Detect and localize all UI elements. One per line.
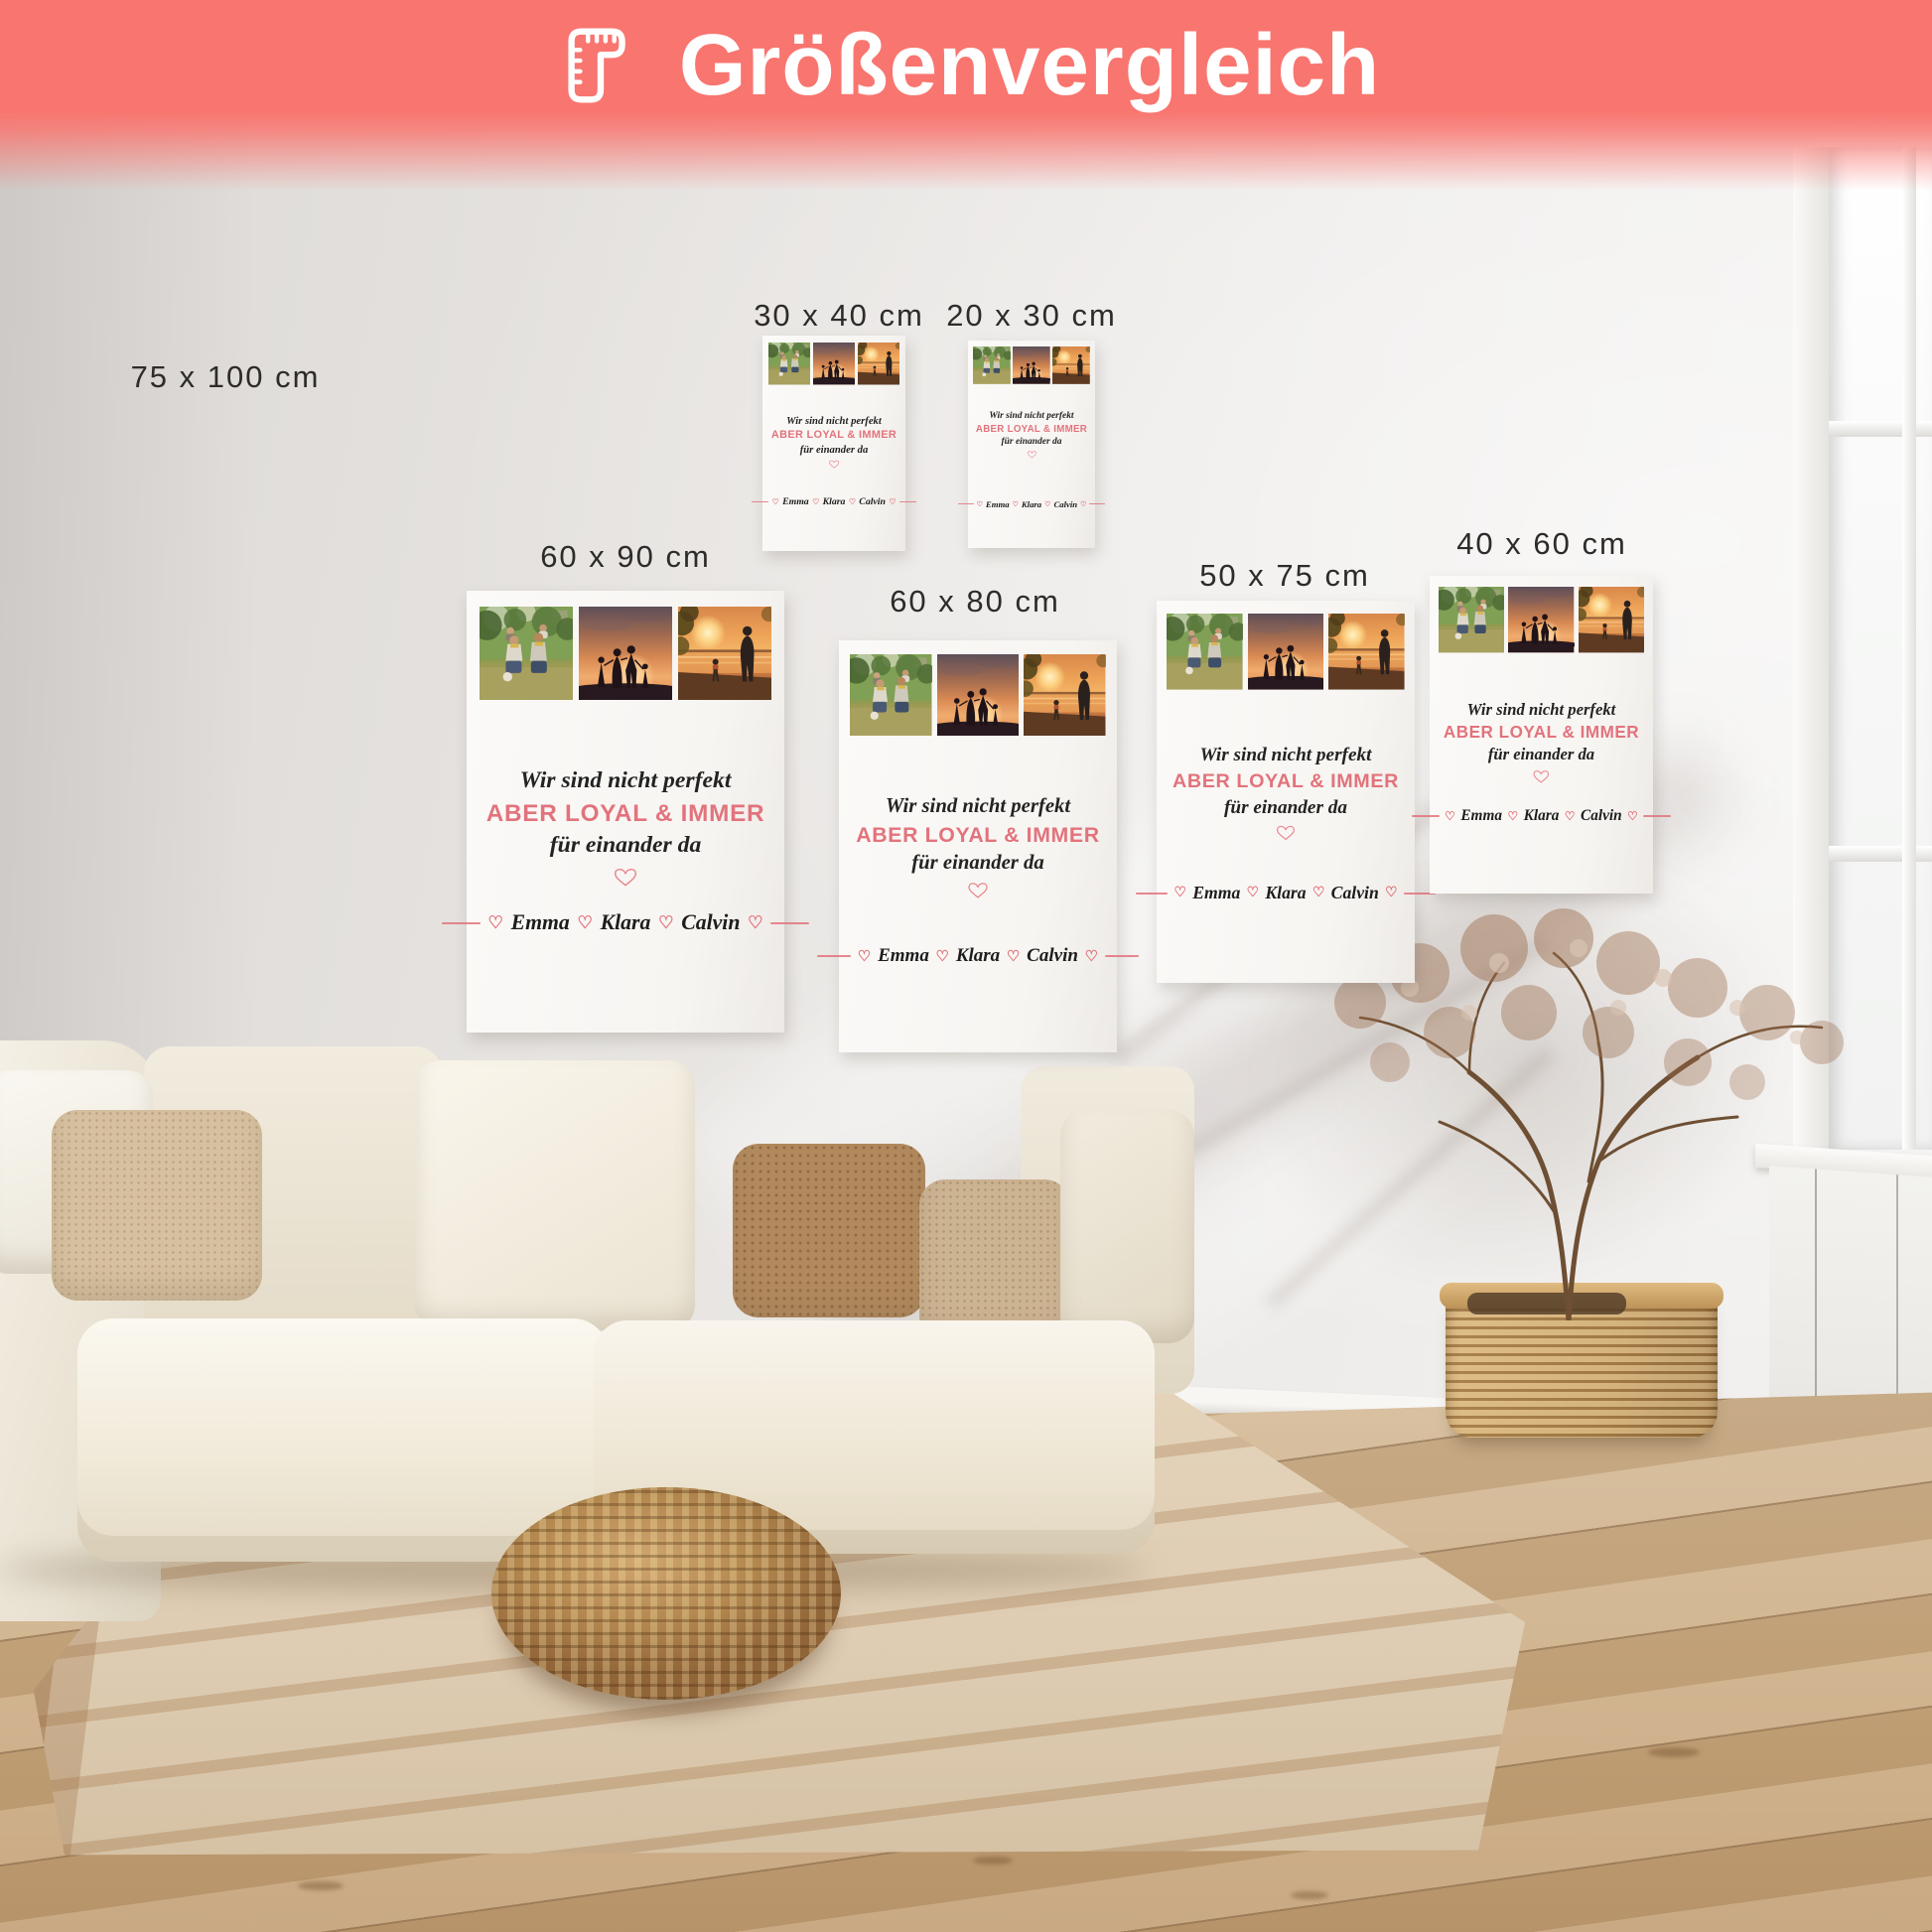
name-calvin: Calvin bbox=[681, 910, 740, 935]
photo-strip bbox=[1167, 614, 1404, 690]
name-calvin: Calvin bbox=[859, 496, 886, 507]
names-row: ♡ Emma ♡ Klara ♡ Calvin ♡ bbox=[1136, 883, 1435, 903]
size-comparison-scene: 75 x 100 cm 30 x 40 cm 20 x 30 cm 60 x 9… bbox=[0, 0, 1932, 1932]
photo-strip bbox=[973, 346, 1090, 384]
quote-block: Wir sind nicht perfekt ABER LOYAL & IMME… bbox=[486, 766, 765, 891]
divider-line bbox=[899, 501, 917, 502]
name-klara: Klara bbox=[601, 910, 651, 935]
quote-line2: ABER LOYAL & IMMER bbox=[976, 424, 1087, 436]
pillow-tan bbox=[919, 1179, 1070, 1342]
canvas-50x75: Wir sind nicht perfekt ABER LOYAL & IMME… bbox=[1157, 601, 1415, 983]
quote-line3: für einander da bbox=[550, 831, 702, 861]
father-child-sunset-photo bbox=[1328, 614, 1405, 690]
heart-divider-icon: ♡ bbox=[772, 497, 779, 506]
heart-divider-icon: ♡ bbox=[812, 497, 819, 506]
heart-divider-icon: ♡ bbox=[1007, 947, 1021, 966]
canvas-20x30: Wir sind nicht perfekt ABER LOYAL & IMME… bbox=[968, 341, 1095, 548]
sofa-seat-cushion bbox=[77, 1318, 609, 1562]
quote-line1: Wir sind nicht perfekt bbox=[786, 415, 882, 428]
names-row: ♡ Emma ♡ Klara ♡ Calvin ♡ bbox=[958, 499, 1105, 509]
heart-outline-icon bbox=[827, 458, 841, 471]
father-child-sunset-photo bbox=[1052, 346, 1090, 384]
name-klara: Klara bbox=[823, 496, 846, 507]
page-title: Größenvergleich bbox=[679, 22, 1380, 108]
heart-divider-icon: ♡ bbox=[849, 497, 856, 506]
quote-line1: Wir sind nicht perfekt bbox=[886, 794, 1070, 820]
divider-line bbox=[817, 955, 851, 957]
heart-divider-icon: ♡ bbox=[1445, 809, 1455, 824]
quote-line2: ABER LOYAL & IMMER bbox=[771, 429, 897, 442]
name-emma: Emma bbox=[1460, 807, 1502, 825]
heart-divider-icon: ♡ bbox=[1507, 809, 1518, 824]
pillow-cream bbox=[415, 1060, 695, 1330]
family-park-photo bbox=[480, 607, 573, 700]
wood-knot bbox=[973, 1857, 1013, 1864]
heart-divider-icon: ♡ bbox=[748, 912, 763, 933]
window-mullion bbox=[1902, 147, 1916, 1150]
name-klara: Klara bbox=[1022, 499, 1041, 509]
divider-line bbox=[770, 922, 809, 924]
heart-outline-icon bbox=[1273, 821, 1299, 844]
quote-block: Wir sind nicht perfekt ABER LOYAL & IMME… bbox=[856, 794, 1099, 902]
names-row: ♡ Emma ♡ Klara ♡ Calvin ♡ bbox=[1412, 807, 1671, 825]
divider-line bbox=[1089, 503, 1105, 504]
heart-divider-icon: ♡ bbox=[1173, 885, 1186, 901]
heart-divider-icon: ♡ bbox=[936, 947, 950, 966]
name-klara: Klara bbox=[1265, 883, 1306, 903]
heart-divider-icon: ♡ bbox=[858, 947, 872, 966]
heart-outline-icon bbox=[610, 863, 641, 892]
canvas-60x80: Wir sind nicht perfekt ABER LOYAL & IMME… bbox=[839, 640, 1117, 1052]
quote-line2: ABER LOYAL & IMMER bbox=[486, 799, 765, 828]
name-calvin: Calvin bbox=[1027, 945, 1078, 967]
family-park-photo bbox=[1439, 587, 1504, 652]
heart-divider-icon: ♡ bbox=[1080, 500, 1086, 508]
pillow-cream bbox=[1060, 1110, 1194, 1343]
quote-line1: Wir sind nicht perfekt bbox=[520, 766, 732, 796]
size-label-20x30: 20 x 30 cm bbox=[873, 298, 1190, 334]
divider-line bbox=[1643, 815, 1671, 816]
heart-outline-icon bbox=[964, 878, 992, 902]
quote-line3: für einander da bbox=[1488, 745, 1594, 765]
header-content: Größenvergleich bbox=[552, 16, 1380, 113]
family-park-photo bbox=[768, 343, 810, 384]
divider-line bbox=[958, 503, 974, 504]
heart-divider-icon: ♡ bbox=[487, 912, 503, 933]
family-sunset-silhouette-photo bbox=[1508, 587, 1574, 652]
divider-line bbox=[1105, 955, 1139, 957]
name-emma: Emma bbox=[511, 910, 570, 935]
heart-outline-icon bbox=[1026, 449, 1038, 461]
heart-divider-icon: ♡ bbox=[977, 500, 983, 508]
family-sunset-silhouette-photo bbox=[1013, 346, 1050, 384]
photo-strip bbox=[850, 654, 1106, 736]
quote-line3: für einander da bbox=[911, 851, 1044, 877]
father-child-sunset-photo bbox=[858, 343, 899, 384]
wood-knot bbox=[1291, 1891, 1328, 1899]
quote-line3: für einander da bbox=[1001, 437, 1061, 449]
quote-block: Wir sind nicht perfekt ABER LOYAL & IMME… bbox=[976, 411, 1087, 461]
father-child-sunset-photo bbox=[1024, 654, 1105, 736]
heart-divider-icon: ♡ bbox=[1565, 809, 1576, 824]
quote-line2: ABER LOYAL & IMMER bbox=[856, 823, 1099, 849]
wood-knot bbox=[298, 1881, 344, 1890]
photo-strip bbox=[1439, 587, 1644, 652]
divider-line bbox=[442, 922, 481, 924]
name-emma: Emma bbox=[986, 499, 1010, 509]
quote-line3: für einander da bbox=[800, 444, 869, 457]
father-child-sunset-photo bbox=[1579, 587, 1644, 652]
quote-block: Wir sind nicht perfekt ABER LOYAL & IMME… bbox=[771, 415, 897, 471]
canvas-40x60: Wir sind nicht perfekt ABER LOYAL & IMME… bbox=[1430, 576, 1653, 894]
wood-knot bbox=[1648, 1747, 1700, 1757]
family-park-photo bbox=[850, 654, 931, 736]
family-sunset-silhouette-photo bbox=[579, 607, 672, 700]
heart-divider-icon: ♡ bbox=[1085, 947, 1099, 966]
name-emma: Emma bbox=[782, 496, 809, 507]
divider-line bbox=[752, 501, 769, 502]
father-child-sunset-photo bbox=[678, 607, 771, 700]
heart-divider-icon: ♡ bbox=[1247, 885, 1260, 901]
photo-strip bbox=[768, 343, 899, 384]
quote-line1: Wir sind nicht perfekt bbox=[1200, 744, 1372, 767]
name-calvin: Calvin bbox=[1581, 807, 1622, 825]
heart-divider-icon: ♡ bbox=[1385, 885, 1398, 901]
heart-divider-icon: ♡ bbox=[889, 497, 896, 506]
heart-divider-icon: ♡ bbox=[1044, 500, 1050, 508]
divider-line bbox=[1412, 815, 1440, 816]
size-label-40x60: 40 x 60 cm bbox=[1383, 526, 1701, 562]
size-label-60x80: 60 x 80 cm bbox=[816, 584, 1134, 620]
photo-strip bbox=[480, 607, 771, 700]
size-label-75x100: 75 x 100 cm bbox=[67, 359, 384, 395]
name-emma: Emma bbox=[878, 945, 929, 967]
names-row: ♡ Emma ♡ Klara ♡ Calvin ♡ bbox=[752, 496, 917, 507]
name-klara: Klara bbox=[956, 945, 1000, 967]
names-row: ♡ Emma ♡ Klara ♡ Calvin ♡ bbox=[442, 910, 810, 935]
heart-divider-icon: ♡ bbox=[1627, 809, 1638, 824]
canvas-60x90: Wir sind nicht perfekt ABER LOYAL & IMME… bbox=[467, 591, 784, 1033]
family-sunset-silhouette-photo bbox=[937, 654, 1019, 736]
quote-line1: Wir sind nicht perfekt bbox=[1467, 700, 1616, 721]
family-sunset-silhouette-photo bbox=[813, 343, 855, 384]
quote-block: Wir sind nicht perfekt ABER LOYAL & IMME… bbox=[1173, 744, 1399, 844]
divider-line bbox=[1136, 893, 1168, 895]
family-park-photo bbox=[973, 346, 1011, 384]
pillow-beige bbox=[52, 1110, 262, 1301]
quote-line3: für einander da bbox=[1224, 796, 1347, 820]
heart-outline-icon bbox=[1530, 766, 1553, 786]
name-klara: Klara bbox=[1524, 807, 1560, 825]
names-row: ♡ Emma ♡ Klara ♡ Calvin ♡ bbox=[817, 945, 1139, 967]
pillow-brown bbox=[733, 1144, 925, 1317]
heart-divider-icon: ♡ bbox=[1312, 885, 1325, 901]
canvas-30x40: Wir sind nicht perfekt ABER LOYAL & IMME… bbox=[762, 336, 905, 551]
size-label-60x90: 60 x 90 cm bbox=[467, 539, 784, 575]
name-emma: Emma bbox=[1192, 883, 1240, 903]
quote-line1: Wir sind nicht perfekt bbox=[989, 411, 1073, 423]
header-banner: Größenvergleich bbox=[0, 0, 1932, 199]
name-calvin: Calvin bbox=[1053, 499, 1077, 509]
family-park-photo bbox=[1167, 614, 1243, 690]
heart-divider-icon: ♡ bbox=[1013, 500, 1019, 508]
window-mullion bbox=[1829, 846, 1932, 862]
wicker-pouf bbox=[491, 1487, 841, 1700]
size-label-50x75: 50 x 75 cm bbox=[1126, 558, 1444, 594]
quote-line2: ABER LOYAL & IMMER bbox=[1444, 723, 1639, 744]
quote-line2: ABER LOYAL & IMMER bbox=[1173, 770, 1399, 794]
name-calvin: Calvin bbox=[1331, 883, 1379, 903]
heart-divider-icon: ♡ bbox=[658, 912, 674, 933]
quote-block: Wir sind nicht perfekt ABER LOYAL & IMME… bbox=[1444, 700, 1639, 787]
family-sunset-silhouette-photo bbox=[1248, 614, 1324, 690]
heart-divider-icon: ♡ bbox=[577, 912, 593, 933]
ruler-icon bbox=[552, 16, 649, 113]
window-mullion bbox=[1829, 421, 1932, 437]
